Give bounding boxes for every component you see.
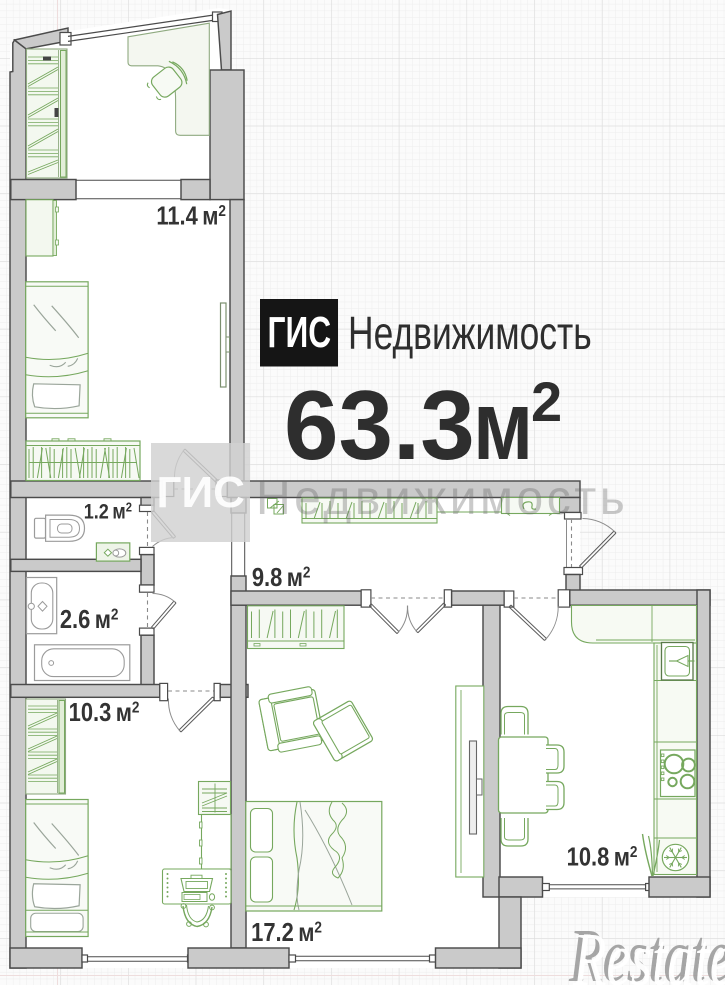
svg-text:ГИС: ГИС — [268, 308, 332, 357]
svg-text:Restate: Restate — [572, 918, 725, 985]
svg-text:10.8 м2: 10.8 м2 — [567, 843, 638, 872]
svg-text:10.3 м2: 10.3 м2 — [69, 698, 140, 727]
svg-text:м: м — [473, 371, 533, 481]
svg-text:2: 2 — [531, 370, 562, 433]
svg-text:1.2 м2: 1.2 м2 — [84, 500, 133, 524]
svg-text:63.3: 63.3 — [284, 370, 475, 480]
svg-text:2.6 м2: 2.6 м2 — [60, 605, 119, 634]
svg-text:ГИС: ГИС — [157, 468, 245, 517]
svg-text:11.4 м2: 11.4 м2 — [156, 202, 226, 231]
svg-text:Недвижимость: Недвижимость — [348, 308, 592, 360]
svg-text:17.2 м2: 17.2 м2 — [251, 918, 322, 947]
svg-text:9.8 м2: 9.8 м2 — [252, 563, 311, 592]
